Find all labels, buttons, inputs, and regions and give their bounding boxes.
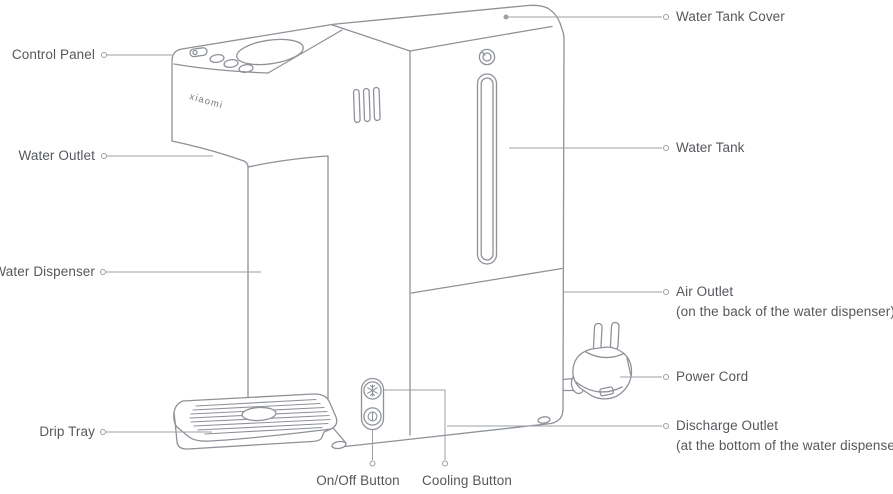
leader-water-tank-cover [504, 15, 669, 20]
vent-slots [353, 87, 380, 122]
label-water-dispenser: Water Dispenser [0, 262, 95, 282]
leader-cooling-button [384, 390, 448, 466]
control-panel-drawing [190, 36, 305, 74]
plug-prong [610, 322, 619, 349]
label-water-tank-cover: Water Tank Cover [676, 7, 785, 27]
label-control-panel: Control Panel [12, 45, 95, 65]
xiaomi-logo: xiaomi [188, 91, 224, 111]
slider-control [190, 47, 208, 57]
label-on-off-button: On/Off Button [316, 471, 400, 491]
water-level-window [478, 74, 497, 264]
label-discharge-outlet-note: (at the bottom of the water dispenser) [676, 436, 893, 456]
leader-discharge-outlet [447, 424, 669, 429]
panel-button [224, 59, 239, 68]
label-discharge-outlet-title: Discharge Outlet [676, 418, 778, 433]
device-foot [332, 441, 347, 450]
drip-tray-drawing [174, 394, 337, 449]
panel-dial [235, 36, 305, 69]
leader-air-outlet [563, 290, 669, 295]
leader-lines [101, 15, 669, 467]
leader-water-dispenser [101, 270, 262, 275]
label-air-outlet-note: (on the back of the water dispenser) [676, 302, 893, 322]
leader-control-panel [102, 53, 173, 58]
parts-diagram: xiaomi [0, 0, 893, 494]
device-foot [538, 416, 551, 424]
label-cooling-button: Cooling Button [422, 471, 512, 491]
panel-button [210, 54, 225, 63]
plug-prong [593, 323, 602, 350]
label-power-cord: Power Cord [676, 367, 748, 387]
slider-dot [193, 51, 197, 55]
leader-on-off-button [370, 430, 375, 466]
label-air-outlet: Air Outlet (on the back of the water dis… [676, 282, 893, 322]
side-buttons [362, 379, 384, 430]
power-plug-drawing [563, 322, 632, 399]
label-discharge-outlet: Discharge Outlet (at the bottom of the w… [676, 416, 893, 456]
label-air-outlet-title: Air Outlet [676, 284, 733, 299]
label-water-tank: Water Tank [676, 138, 745, 158]
tank-divider-line [412, 269, 563, 294]
label-water-outlet: Water Outlet [19, 146, 95, 166]
label-drip-tray: Drip Tray [39, 422, 95, 442]
leader-water-outlet [102, 154, 214, 159]
leader-water-tank [509, 146, 669, 151]
lock-icon [479, 49, 494, 64]
